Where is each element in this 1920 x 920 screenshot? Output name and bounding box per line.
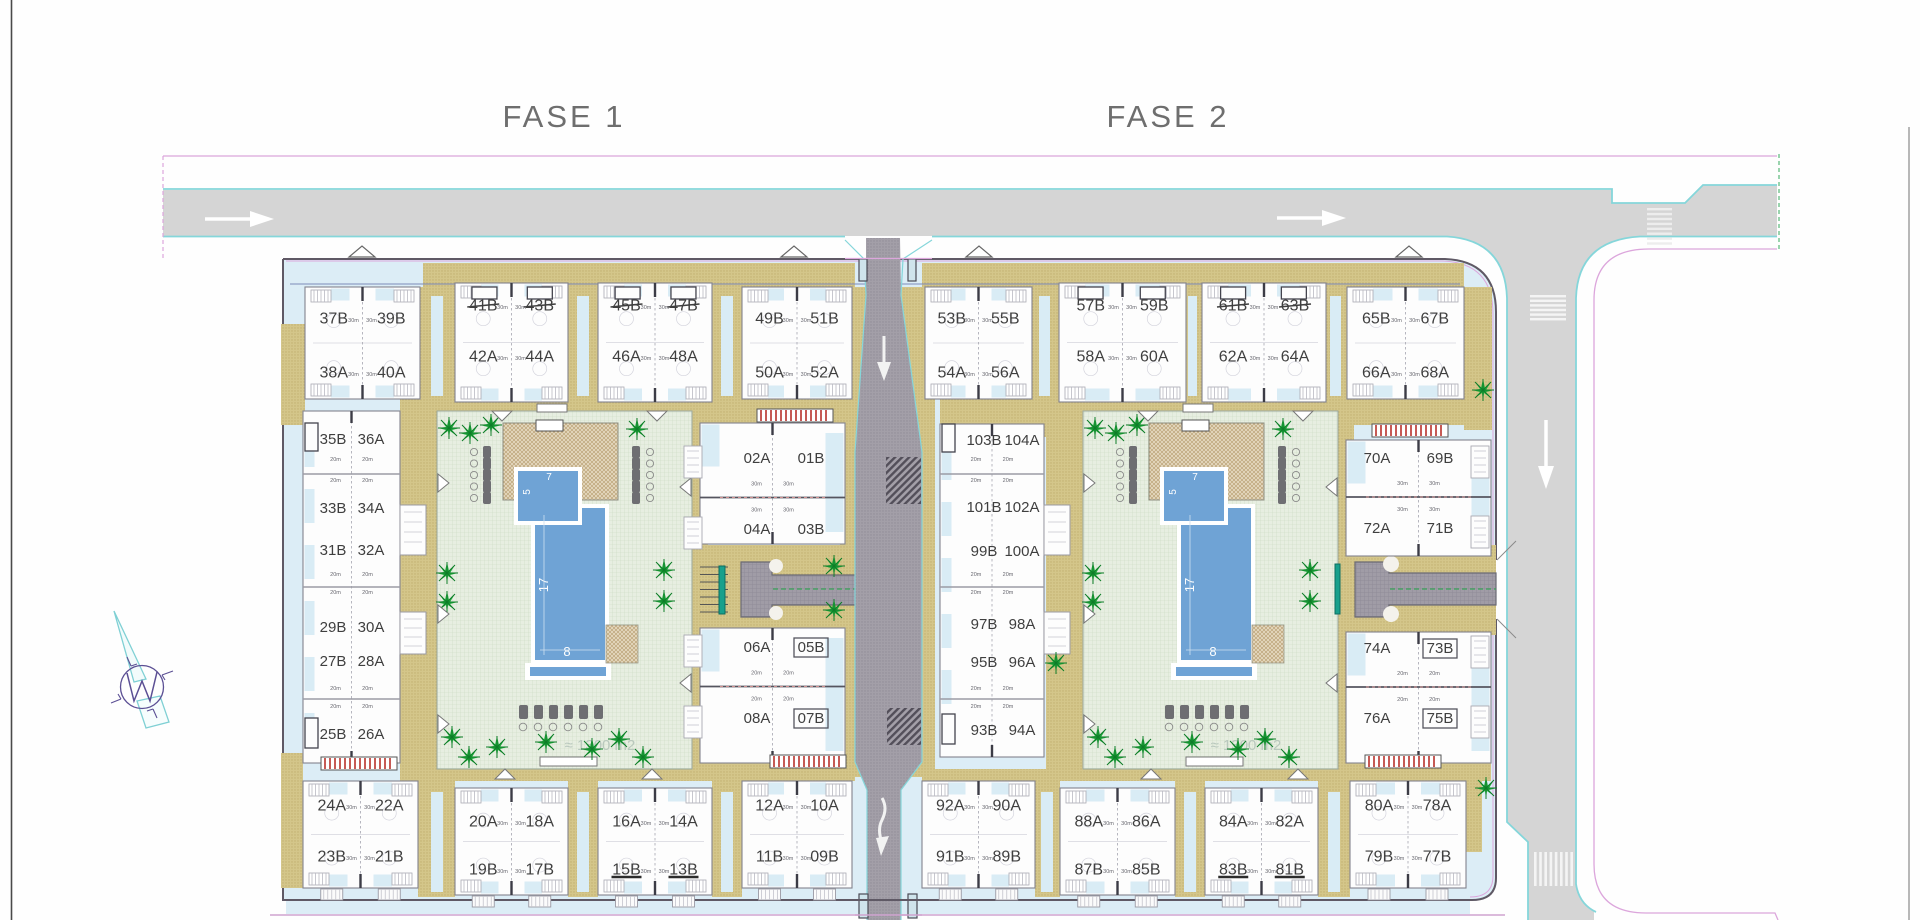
svg-text:92A: 92A bbox=[936, 798, 965, 815]
svg-text:30m: 30m bbox=[1412, 856, 1423, 862]
svg-text:20m: 20m bbox=[1003, 457, 1014, 463]
svg-text:90A: 90A bbox=[993, 798, 1022, 815]
svg-text:65B: 65B bbox=[1362, 311, 1390, 328]
svg-text:5: 5 bbox=[1168, 489, 1179, 495]
svg-text:30m: 30m bbox=[1409, 372, 1420, 378]
svg-text:95B: 95B bbox=[971, 654, 998, 671]
svg-text:30m: 30m bbox=[641, 869, 652, 875]
svg-text:30m: 30m bbox=[515, 821, 526, 827]
svg-text:55B: 55B bbox=[991, 311, 1019, 328]
svg-text:30m: 30m bbox=[366, 372, 377, 378]
svg-text:30m: 30m bbox=[1429, 507, 1440, 513]
svg-text:36A: 36A bbox=[358, 431, 385, 448]
svg-text:30m: 30m bbox=[348, 318, 359, 324]
svg-text:30m: 30m bbox=[346, 805, 357, 811]
svg-text:20m: 20m bbox=[362, 704, 373, 710]
svg-text:91B: 91B bbox=[936, 849, 964, 866]
svg-text:08A: 08A bbox=[744, 710, 771, 727]
svg-text:93B: 93B bbox=[971, 722, 998, 739]
svg-text:40A: 40A bbox=[377, 365, 406, 382]
svg-text:53B: 53B bbox=[938, 311, 966, 328]
svg-text:20m: 20m bbox=[330, 457, 341, 463]
svg-text:17: 17 bbox=[1182, 578, 1197, 592]
svg-text:30m: 30m bbox=[964, 372, 975, 378]
svg-text:30m: 30m bbox=[982, 318, 993, 324]
svg-text:51B: 51B bbox=[810, 311, 838, 328]
svg-text:20m: 20m bbox=[330, 590, 341, 596]
svg-text:30m: 30m bbox=[982, 372, 993, 378]
svg-text:30m: 30m bbox=[659, 821, 670, 827]
svg-text:20m: 20m bbox=[751, 671, 762, 677]
svg-text:20m: 20m bbox=[362, 686, 373, 692]
svg-text:30m: 30m bbox=[783, 805, 794, 811]
svg-text:20m: 20m bbox=[1003, 704, 1014, 710]
svg-text:37B: 37B bbox=[320, 311, 348, 328]
svg-text:30m: 30m bbox=[641, 305, 652, 311]
svg-text:20m: 20m bbox=[1003, 590, 1014, 596]
svg-text:69B: 69B bbox=[1427, 450, 1454, 467]
svg-text:102A: 102A bbox=[1004, 499, 1039, 516]
svg-text:33B: 33B bbox=[320, 500, 347, 517]
svg-text:30m: 30m bbox=[1121, 821, 1132, 827]
svg-text:30m: 30m bbox=[801, 318, 812, 324]
svg-text:17: 17 bbox=[536, 578, 551, 592]
svg-text:01B: 01B bbox=[798, 450, 825, 467]
svg-text:94A: 94A bbox=[1009, 722, 1036, 739]
svg-text:20m: 20m bbox=[362, 478, 373, 484]
svg-text:86A: 86A bbox=[1132, 814, 1161, 831]
svg-text:25B: 25B bbox=[320, 726, 347, 743]
svg-text:7: 7 bbox=[1192, 472, 1198, 483]
svg-text:23B: 23B bbox=[318, 849, 346, 866]
svg-text:87B: 87B bbox=[1075, 862, 1103, 879]
svg-text:30m: 30m bbox=[964, 318, 975, 324]
svg-text:20m: 20m bbox=[330, 572, 341, 578]
svg-text:31B: 31B bbox=[320, 542, 347, 559]
svg-text:09B: 09B bbox=[810, 849, 838, 866]
svg-text:54A: 54A bbox=[938, 365, 967, 382]
svg-text:20m: 20m bbox=[1397, 671, 1408, 677]
svg-text:30m: 30m bbox=[1103, 869, 1114, 875]
svg-text:30m: 30m bbox=[1250, 305, 1261, 311]
svg-text:30m: 30m bbox=[801, 805, 812, 811]
svg-text:100A: 100A bbox=[1004, 543, 1039, 560]
svg-text:104A: 104A bbox=[1004, 432, 1039, 449]
svg-text:59B: 59B bbox=[1140, 298, 1168, 315]
svg-text:30m: 30m bbox=[1391, 318, 1402, 324]
svg-text:82A: 82A bbox=[1276, 814, 1305, 831]
svg-text:52A: 52A bbox=[810, 365, 839, 382]
svg-text:06A: 06A bbox=[744, 639, 771, 656]
svg-text:35B: 35B bbox=[320, 431, 347, 448]
svg-text:16A: 16A bbox=[612, 814, 641, 831]
svg-text:30m: 30m bbox=[1391, 372, 1402, 378]
svg-text:80A: 80A bbox=[1365, 798, 1394, 815]
svg-text:30m: 30m bbox=[1394, 805, 1405, 811]
svg-text:98A: 98A bbox=[1009, 616, 1036, 633]
svg-text:14A: 14A bbox=[669, 814, 698, 831]
svg-text:8: 8 bbox=[1209, 644, 1216, 659]
svg-text:78A: 78A bbox=[1423, 798, 1452, 815]
svg-text:50A: 50A bbox=[755, 365, 784, 382]
svg-text:30m: 30m bbox=[497, 356, 508, 362]
svg-text:76A: 76A bbox=[1364, 710, 1391, 727]
svg-text:30m: 30m bbox=[783, 508, 794, 514]
svg-text:20m: 20m bbox=[1003, 572, 1014, 578]
svg-text:20m: 20m bbox=[971, 572, 982, 578]
svg-text:30m: 30m bbox=[1108, 305, 1119, 311]
svg-text:27B: 27B bbox=[320, 653, 347, 670]
svg-text:20m: 20m bbox=[971, 457, 982, 463]
svg-text:18A: 18A bbox=[526, 814, 555, 831]
svg-text:58A: 58A bbox=[1077, 349, 1106, 366]
svg-text:30m: 30m bbox=[366, 318, 377, 324]
svg-text:10A: 10A bbox=[810, 798, 839, 815]
svg-text:5: 5 bbox=[522, 489, 533, 495]
svg-text:03B: 03B bbox=[798, 521, 825, 538]
svg-text:20m: 20m bbox=[362, 457, 373, 463]
svg-text:42A: 42A bbox=[469, 349, 498, 366]
svg-text:20m: 20m bbox=[1003, 686, 1014, 692]
svg-text:30m: 30m bbox=[1268, 305, 1279, 311]
svg-text:20A: 20A bbox=[469, 814, 498, 831]
svg-text:20m: 20m bbox=[971, 590, 982, 596]
svg-text:30m: 30m bbox=[751, 482, 762, 488]
svg-text:30m: 30m bbox=[659, 305, 670, 311]
svg-text:30m: 30m bbox=[515, 305, 526, 311]
svg-text:73B: 73B bbox=[1427, 640, 1454, 657]
svg-text:30m: 30m bbox=[801, 856, 812, 862]
svg-text:24A: 24A bbox=[318, 798, 347, 815]
svg-text:21B: 21B bbox=[375, 849, 403, 866]
svg-text:30m: 30m bbox=[783, 318, 794, 324]
svg-text:11B: 11B bbox=[756, 849, 783, 866]
svg-text:46A: 46A bbox=[612, 349, 641, 366]
svg-text:26A: 26A bbox=[358, 726, 385, 743]
svg-text:20m: 20m bbox=[971, 686, 982, 692]
svg-text:70A: 70A bbox=[1364, 450, 1391, 467]
svg-text:96A: 96A bbox=[1009, 654, 1036, 671]
svg-text:30m: 30m bbox=[964, 805, 975, 811]
svg-text:30m: 30m bbox=[1397, 481, 1408, 487]
svg-text:20m: 20m bbox=[971, 704, 982, 710]
svg-text:30m: 30m bbox=[783, 482, 794, 488]
svg-text:68A: 68A bbox=[1421, 365, 1450, 382]
svg-text:49B: 49B bbox=[755, 311, 783, 328]
svg-text:30m: 30m bbox=[801, 372, 812, 378]
svg-text:30m: 30m bbox=[364, 805, 375, 811]
svg-text:30m: 30m bbox=[515, 869, 526, 875]
svg-text:38A: 38A bbox=[320, 365, 349, 382]
svg-text:48A: 48A bbox=[669, 349, 698, 366]
svg-text:20m: 20m bbox=[971, 478, 982, 484]
svg-text:29B: 29B bbox=[320, 619, 347, 636]
svg-text:30m: 30m bbox=[641, 821, 652, 827]
svg-text:66A: 66A bbox=[1362, 365, 1391, 382]
svg-text:28A: 28A bbox=[358, 653, 385, 670]
svg-text:30m: 30m bbox=[1265, 821, 1276, 827]
svg-text:20m: 20m bbox=[783, 671, 794, 677]
svg-text:FASE 1: FASE 1 bbox=[502, 99, 625, 134]
svg-text:62A: 62A bbox=[1219, 349, 1248, 366]
svg-text:20m: 20m bbox=[751, 697, 762, 703]
svg-text:30m: 30m bbox=[659, 356, 670, 362]
svg-text:30m: 30m bbox=[1429, 481, 1440, 487]
svg-text:97B: 97B bbox=[971, 616, 998, 633]
svg-text:30m: 30m bbox=[783, 372, 794, 378]
svg-text:30m: 30m bbox=[982, 856, 993, 862]
svg-text:30m: 30m bbox=[1108, 356, 1119, 362]
svg-text:88A: 88A bbox=[1075, 814, 1104, 831]
svg-text:30m: 30m bbox=[1265, 869, 1276, 875]
svg-text:8: 8 bbox=[563, 644, 570, 659]
svg-text:30m: 30m bbox=[1394, 856, 1405, 862]
svg-text:74A: 74A bbox=[1364, 640, 1391, 657]
svg-text:64A: 64A bbox=[1281, 349, 1310, 366]
svg-text:30m: 30m bbox=[497, 305, 508, 311]
svg-text:20m: 20m bbox=[330, 478, 341, 484]
svg-text:30m: 30m bbox=[751, 508, 762, 514]
svg-text:20m: 20m bbox=[1397, 697, 1408, 703]
svg-text:89B: 89B bbox=[993, 849, 1021, 866]
svg-text:60A: 60A bbox=[1140, 349, 1169, 366]
svg-text:20m: 20m bbox=[330, 686, 341, 692]
svg-text:30m: 30m bbox=[1121, 869, 1132, 875]
svg-text:99B: 99B bbox=[971, 543, 998, 560]
svg-text:44A: 44A bbox=[526, 349, 555, 366]
svg-text:30m: 30m bbox=[1103, 821, 1114, 827]
svg-text:05B: 05B bbox=[798, 639, 825, 656]
svg-text:20m: 20m bbox=[330, 704, 341, 710]
svg-text:75B: 75B bbox=[1427, 710, 1454, 727]
svg-text:39B: 39B bbox=[377, 311, 405, 328]
svg-text:20m: 20m bbox=[1429, 671, 1440, 677]
svg-text:30A: 30A bbox=[358, 619, 385, 636]
svg-text:30m: 30m bbox=[364, 856, 375, 862]
svg-text:30m: 30m bbox=[1126, 356, 1137, 362]
svg-text:02A: 02A bbox=[744, 450, 771, 467]
svg-text:30m: 30m bbox=[1397, 507, 1408, 513]
svg-text:04A: 04A bbox=[744, 521, 771, 538]
svg-text:30m: 30m bbox=[1247, 821, 1258, 827]
svg-text:30m: 30m bbox=[659, 869, 670, 875]
svg-text:20m: 20m bbox=[783, 697, 794, 703]
svg-text:77B: 77B bbox=[1423, 849, 1451, 866]
svg-text:30m: 30m bbox=[497, 821, 508, 827]
svg-text:72A: 72A bbox=[1364, 520, 1391, 537]
svg-text:30m: 30m bbox=[964, 856, 975, 862]
svg-text:30m: 30m bbox=[346, 856, 357, 862]
svg-text:34A: 34A bbox=[358, 500, 385, 517]
svg-text:84A: 84A bbox=[1219, 814, 1248, 831]
svg-text:56A: 56A bbox=[991, 365, 1020, 382]
svg-text:30m: 30m bbox=[515, 356, 526, 362]
svg-text:22A: 22A bbox=[375, 798, 404, 815]
svg-text:67B: 67B bbox=[1421, 311, 1449, 328]
svg-text:30m: 30m bbox=[641, 356, 652, 362]
svg-text:30m: 30m bbox=[1250, 356, 1261, 362]
svg-text:30m: 30m bbox=[497, 869, 508, 875]
svg-text:79B: 79B bbox=[1365, 849, 1393, 866]
svg-text:30m: 30m bbox=[1247, 869, 1258, 875]
svg-text:20m: 20m bbox=[362, 590, 373, 596]
svg-text:30m: 30m bbox=[1126, 305, 1137, 311]
svg-text:103B: 103B bbox=[966, 432, 1001, 449]
svg-text:19B: 19B bbox=[469, 862, 497, 879]
svg-text:20m: 20m bbox=[362, 572, 373, 578]
svg-text:57B: 57B bbox=[1077, 298, 1105, 315]
svg-text:30m: 30m bbox=[783, 856, 794, 862]
svg-text:101B: 101B bbox=[966, 499, 1001, 516]
svg-text:71B: 71B bbox=[1427, 520, 1454, 537]
svg-text:30m: 30m bbox=[348, 372, 359, 378]
svg-text:20m: 20m bbox=[1429, 697, 1440, 703]
svg-text:20m: 20m bbox=[1003, 478, 1014, 484]
svg-text:30m: 30m bbox=[1268, 356, 1279, 362]
svg-text:FASE 2: FASE 2 bbox=[1106, 99, 1229, 134]
svg-text:07B: 07B bbox=[798, 710, 825, 727]
svg-text:85B: 85B bbox=[1132, 862, 1160, 879]
svg-text:17B: 17B bbox=[526, 862, 554, 879]
svg-text:32A: 32A bbox=[358, 542, 385, 559]
svg-text:12A: 12A bbox=[755, 798, 784, 815]
svg-text:7: 7 bbox=[546, 472, 552, 483]
svg-text:30m: 30m bbox=[982, 805, 993, 811]
svg-text:30m: 30m bbox=[1409, 318, 1420, 324]
svg-text:30m: 30m bbox=[1412, 805, 1423, 811]
